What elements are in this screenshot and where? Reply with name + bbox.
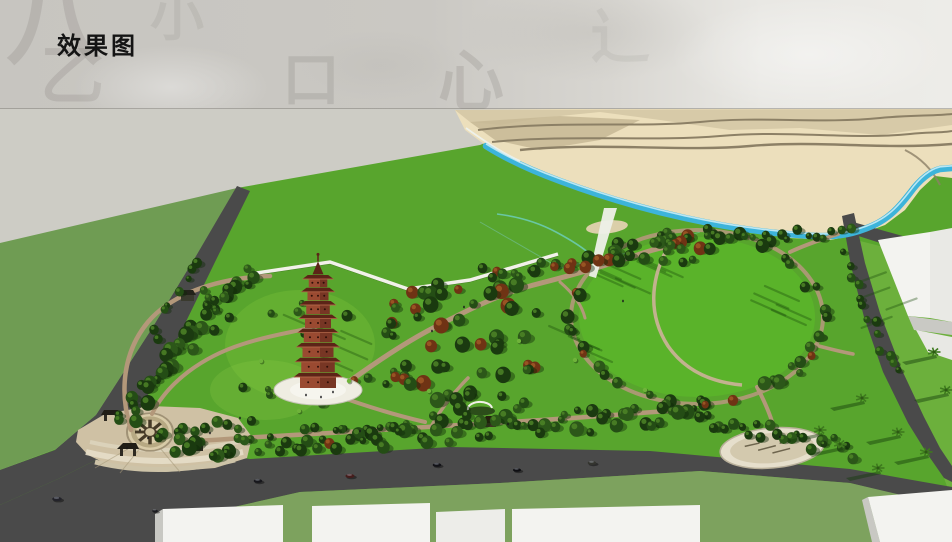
building-block <box>155 505 283 542</box>
presentation-slide: 八 乙 口 心 辶 小 效果图 <box>0 0 952 542</box>
person <box>507 423 509 426</box>
watermark-glyph: 口 <box>282 52 340 109</box>
person <box>699 403 701 406</box>
person <box>320 396 322 399</box>
person <box>209 432 211 435</box>
person <box>359 430 361 433</box>
building-corner <box>862 490 952 542</box>
building-block <box>312 503 430 542</box>
page-title: 效果图 <box>57 26 138 61</box>
person <box>622 300 624 303</box>
person <box>139 429 141 432</box>
building-block <box>436 509 505 542</box>
person <box>126 447 128 450</box>
person <box>463 306 465 309</box>
person <box>239 417 241 420</box>
person <box>431 330 433 333</box>
person <box>779 436 781 439</box>
person <box>147 437 149 440</box>
watermark-glyph: 辶 <box>590 8 650 68</box>
watermark-glyph: 小 <box>150 0 204 44</box>
watermark-glyph: 心 <box>438 48 504 109</box>
person <box>305 394 307 397</box>
rendering-image <box>0 109 952 542</box>
person <box>332 391 334 394</box>
header-divider <box>0 108 952 109</box>
slide-header: 八 乙 口 心 辶 小 效果图 <box>0 0 952 109</box>
building-block <box>512 505 700 542</box>
